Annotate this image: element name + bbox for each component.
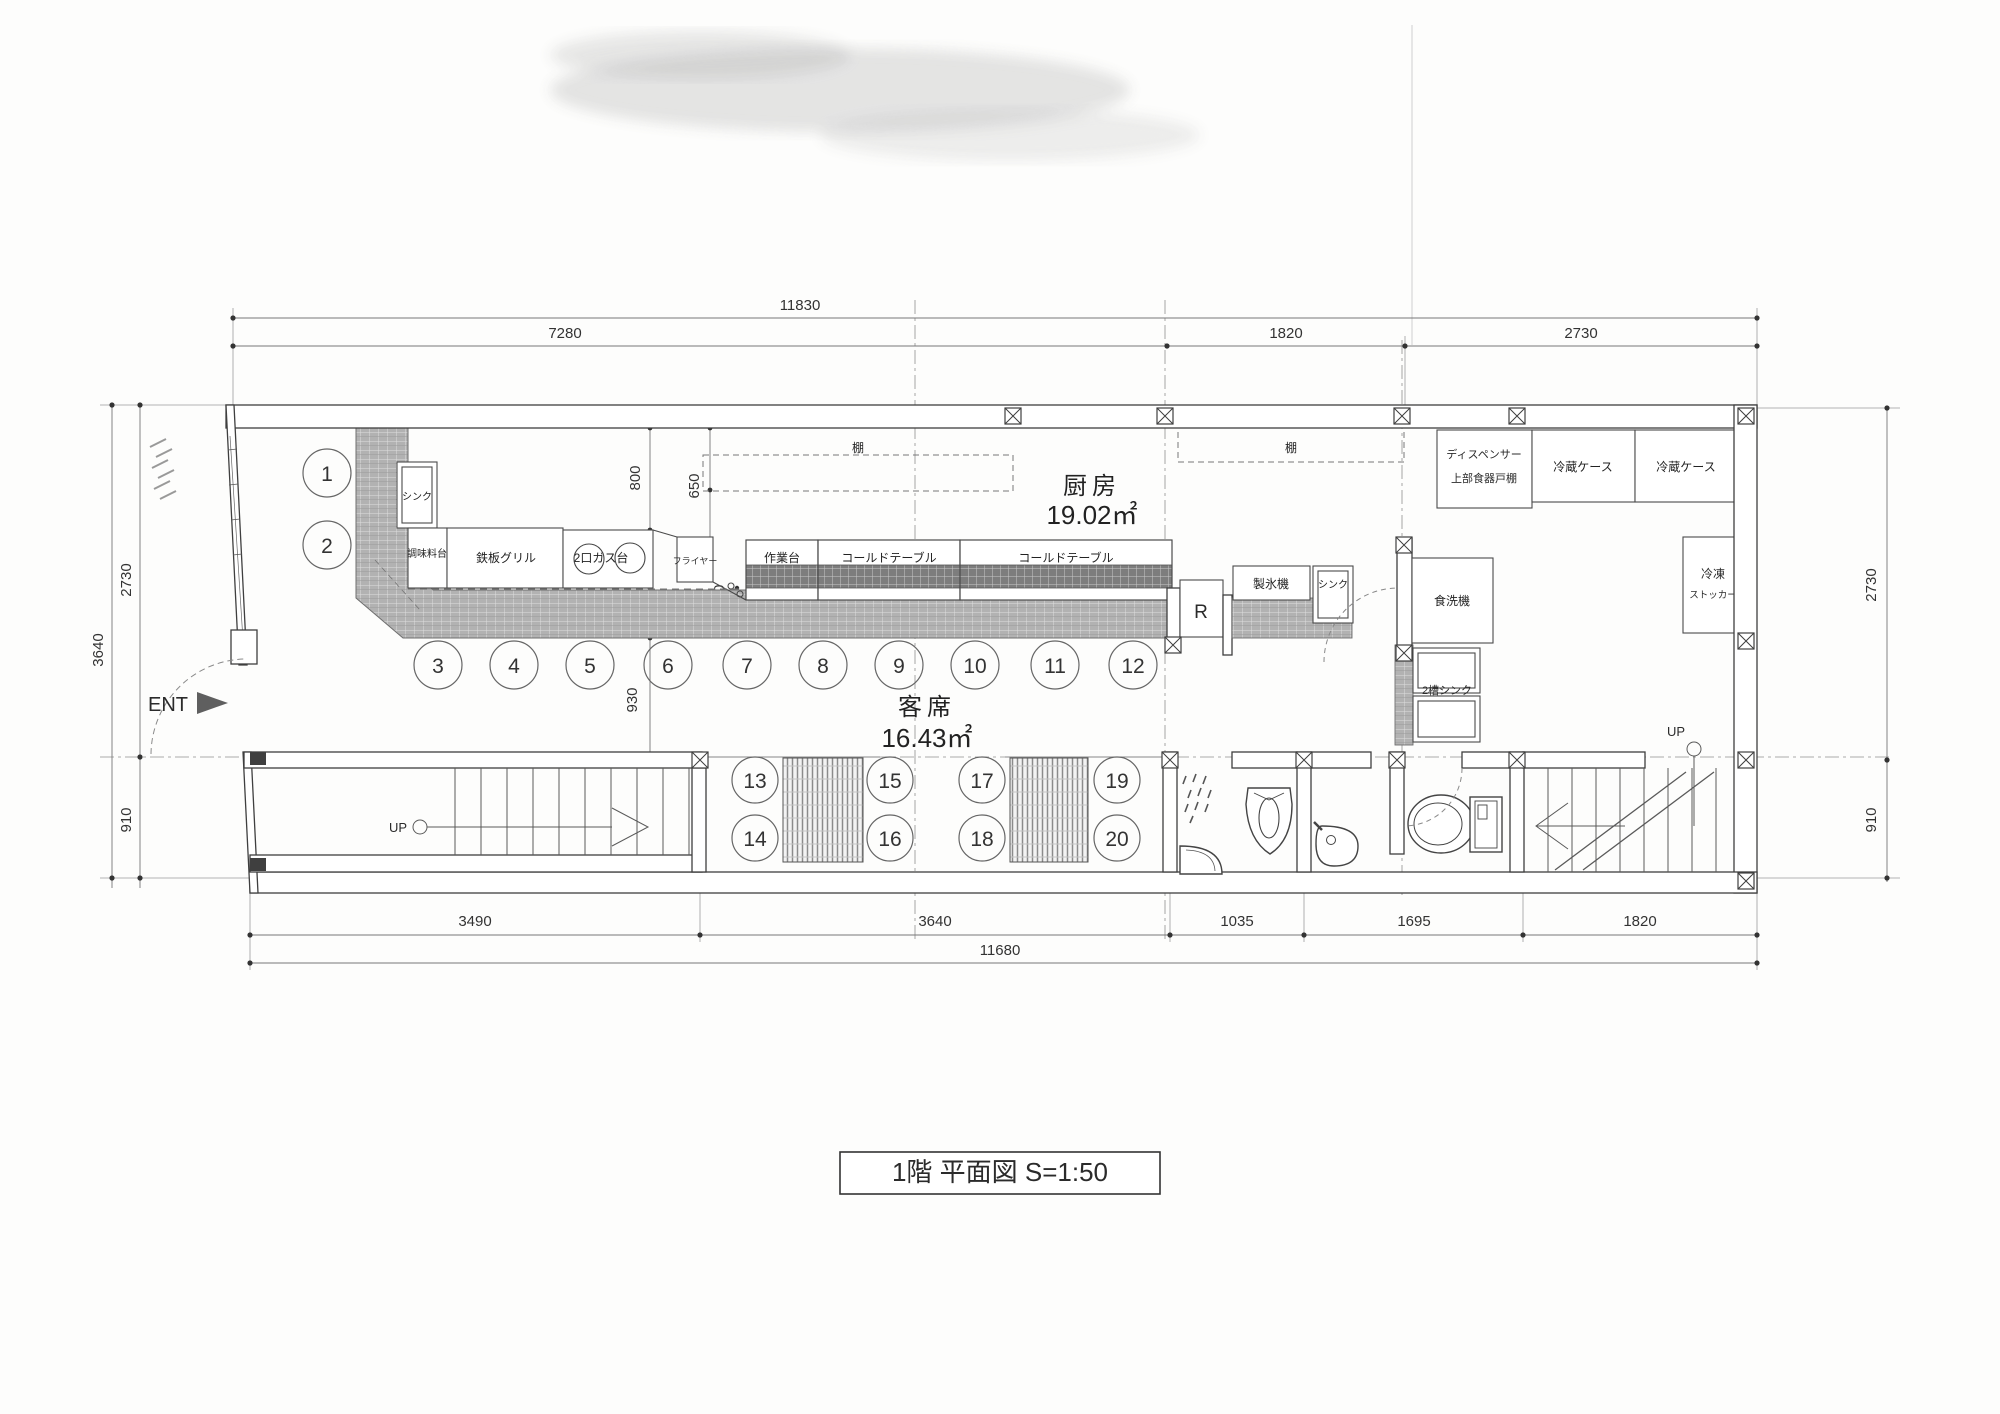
freezer-label-2: ストッカー — [1689, 590, 1737, 601]
dim-bottom-4: 1695 — [1397, 913, 1430, 930]
freezer-label-1: 冷凍 — [1701, 567, 1725, 581]
up-right-label: UP — [1667, 724, 1685, 739]
seat-11: 11 — [1044, 655, 1066, 678]
seat-18: 18 — [970, 828, 993, 851]
seat-3: 3 — [432, 655, 444, 678]
seat-6: 6 — [662, 655, 674, 678]
seat-7: 7 — [741, 655, 753, 678]
refrigerator-r-label: R — [1194, 602, 1208, 623]
seat-2: 2 — [321, 535, 333, 558]
drawing-title: 1階 平面図 S=1:50 — [892, 1157, 1108, 1187]
seat-4: 4 — [508, 655, 520, 678]
dim-top-2: 1820 — [1269, 325, 1302, 342]
kitchen-area: 19.02㎡ — [1046, 500, 1137, 530]
dim-top-overall: 11830 — [780, 297, 821, 314]
dim-bottom-5: 1820 — [1623, 913, 1656, 930]
teppan-grill-label: 鉄板グリル — [476, 550, 536, 565]
dim-bottom-2: 3640 — [918, 913, 951, 930]
dispenser-label-1: ディスペンサー — [1446, 447, 1521, 461]
seat-20: 20 — [1105, 828, 1128, 851]
double-sink-label: 2槽シンク — [1422, 684, 1472, 697]
dining-area: 16.43㎡ — [881, 723, 972, 753]
door-spray-marks — [1183, 774, 1211, 823]
dim-right-lower: 910 — [1863, 807, 1880, 832]
fridge-case-1-label: 冷蔵ケース — [1553, 460, 1612, 474]
seat-14: 14 — [743, 828, 767, 851]
seat-12: 12 — [1121, 655, 1144, 678]
dim-in-650: 650 — [686, 473, 703, 498]
shelf-2-label: 棚 — [1285, 440, 1297, 455]
fryer-label: フライヤー — [673, 556, 718, 566]
dim-left-lower: 910 — [118, 807, 135, 832]
dim-bottom-3: 1035 — [1220, 913, 1253, 930]
pass-through-zone: R 製氷機 シンク — [1167, 566, 1398, 662]
seat-10: 10 — [963, 655, 986, 678]
stair-left — [413, 768, 689, 855]
seasoning-stand-label: 調味料台 — [407, 547, 447, 560]
kitchen-name: 厨房 — [1063, 473, 1121, 500]
seat-1: 1 — [321, 463, 333, 486]
seat-19: 19 — [1105, 770, 1128, 793]
dishwasher-label: 食洗機 — [1434, 593, 1470, 608]
gas-stove-label: 2口ガス台 — [574, 550, 629, 565]
dim-top-1: 7280 — [548, 325, 581, 342]
ice-maker-label: 製氷機 — [1253, 576, 1289, 591]
sink-left-label: シンク — [402, 491, 432, 503]
toilet-fixture — [1408, 795, 1502, 853]
sink-small-label: シンク — [1318, 579, 1348, 591]
entrance-arrow-icon — [197, 692, 228, 714]
seat-16: 16 — [878, 828, 901, 851]
up-left-label: UP — [389, 820, 407, 835]
cold-table-1-label: コールドテーブル — [841, 550, 936, 565]
shelf-1-label: 棚 — [852, 440, 864, 455]
work-table-label: 作業台 — [764, 550, 800, 565]
dim-top-3: 2730 — [1564, 325, 1597, 342]
title-block: 1階 平面図 S=1:50 — [840, 1152, 1160, 1194]
wash-basin — [1314, 822, 1358, 866]
dim-right-upper: 2730 — [1863, 568, 1880, 601]
dim-in-930: 930 — [624, 687, 641, 712]
dim-bottom-1: 3490 — [458, 913, 491, 930]
dim-in-800: 800 — [627, 465, 644, 490]
dish-area: 食洗機 2槽シンク — [1395, 538, 1493, 745]
dining-tables — [783, 758, 1088, 862]
dim-left-upper: 2730 — [118, 563, 135, 596]
dim-left-overall: 3640 — [90, 633, 107, 666]
fridge-case-2-label: 冷蔵ケース — [1656, 460, 1715, 474]
seat-15: 15 — [878, 770, 901, 793]
scan-artifacts — [550, 25, 1412, 345]
seat-8: 8 — [817, 655, 829, 678]
dispenser-label-2: 上部食器戸棚 — [1451, 471, 1517, 485]
seat-5: 5 — [584, 655, 596, 678]
cold-table-2-label: コールドテーブル — [1018, 550, 1113, 565]
seat-13: 13 — [743, 770, 766, 793]
floor-plan-page: 11830 7280 1820 2730 3490 3640 1035 1695… — [0, 0, 2000, 1414]
toilet-area — [1180, 768, 1502, 874]
dim-bottom-overall: 11680 — [980, 942, 1021, 959]
counter-top-dark-hatch — [746, 565, 1172, 588]
urinal-fixture — [1246, 788, 1292, 854]
dining-name: 客席 — [898, 694, 956, 721]
floor-plan-drawing: 11830 7280 1820 2730 3490 3640 1035 1695… — [0, 0, 2000, 1414]
seat-9: 9 — [893, 655, 905, 678]
seat-17: 17 — [970, 770, 993, 793]
entrance-label: ENT — [148, 694, 188, 716]
shelves — [703, 428, 1404, 491]
